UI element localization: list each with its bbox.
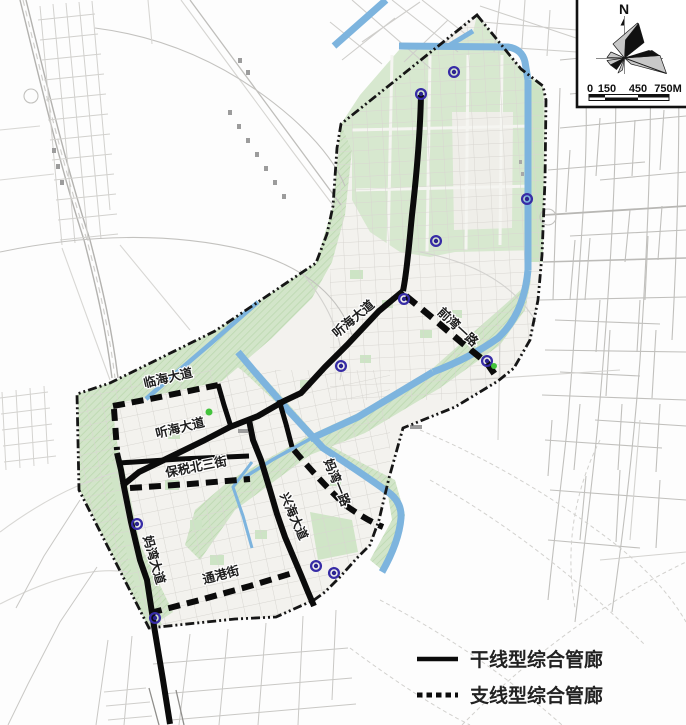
- svg-text:N: N: [619, 1, 629, 17]
- svg-text:450: 450: [629, 83, 647, 95]
- svg-text:支线型综合管廊: 支线型综合管廊: [469, 684, 603, 707]
- svg-text:150: 150: [598, 83, 616, 95]
- svg-text:干线型综合管廊: 干线型综合管廊: [470, 648, 603, 671]
- svg-text:750M: 750M: [654, 83, 682, 95]
- svg-text:0: 0: [587, 83, 593, 95]
